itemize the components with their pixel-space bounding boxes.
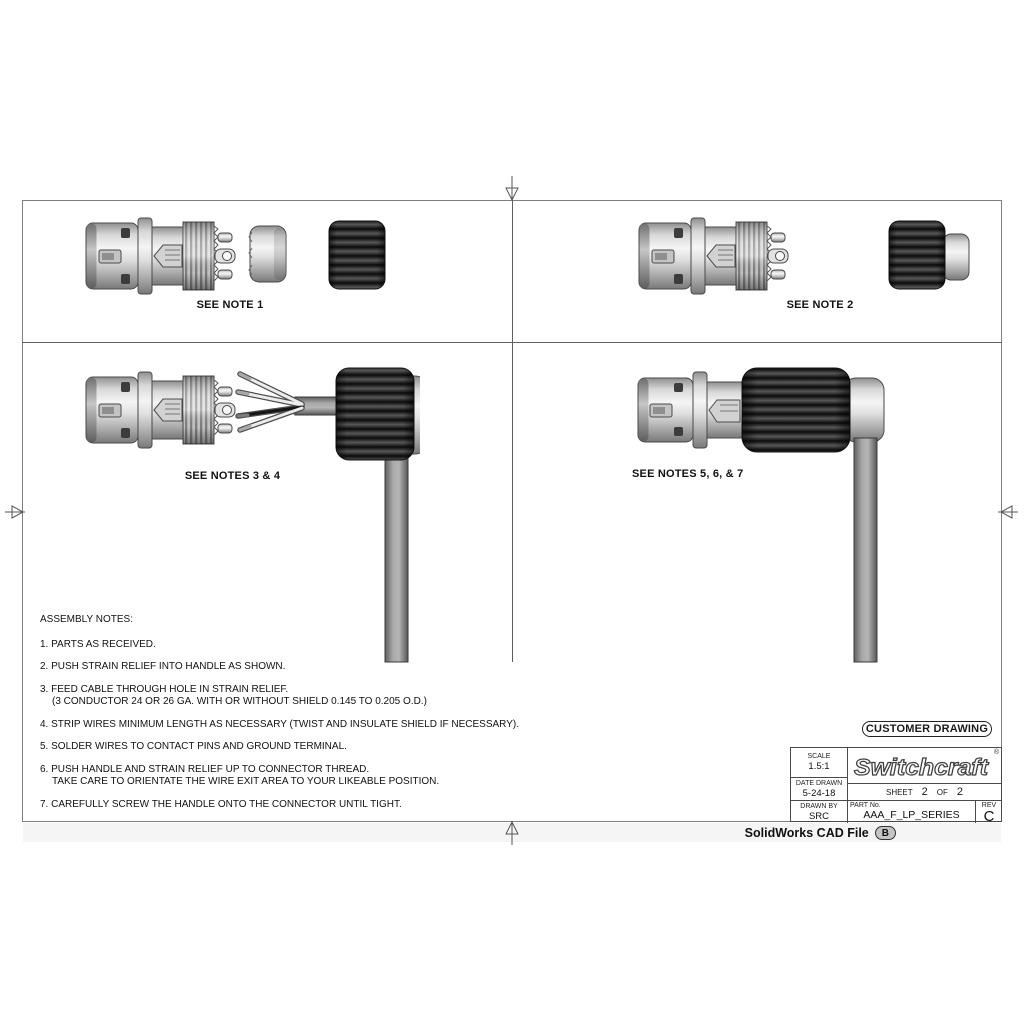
see-note-1-label: SEE NOTE 1 [160, 299, 300, 311]
switchcraft-logo: Switchcraft [851, 749, 999, 783]
brand-logo-cell: Switchcraft ® [848, 748, 1001, 784]
handle-art [742, 368, 850, 452]
assembly-note-2: 2. PUSH STRAIN RELIEF INTO HANDLE AS SHO… [40, 661, 510, 673]
xlr-shell-art [638, 372, 743, 448]
revision-cell: REV C [976, 801, 1002, 823]
customer-drawing-badge: CUSTOMER DRAWING [862, 721, 992, 737]
handle-art [329, 221, 385, 289]
assembly-note-6-continued: TAKE CARE TO ORIENTATE THE WIRE EXIT ARE… [52, 776, 510, 788]
sheet-number: 2 [922, 786, 928, 798]
assembly-note-4: 4. STRIP WIRES MINIMUM LENGTH AS NECESSA… [40, 719, 510, 731]
handle-art [889, 221, 945, 289]
registered-trademark-icon: ® [994, 749, 999, 756]
drawn-by-cell: DRAWN BY SRC [791, 801, 848, 823]
center-mark-right-icon [993, 502, 1019, 522]
sheet-label: SHEET [886, 788, 913, 797]
exploded-parts-drawing [80, 212, 400, 304]
drawn-by-value: SRC [809, 811, 829, 822]
scale-value: 1.5:1 [808, 761, 829, 772]
date-drawn-cell: DATE DRAWN 5-24-18 [791, 778, 848, 801]
assembly-note-7: 7. CAREFULLY SCREW THE HANDLE ONTO THE C… [40, 799, 510, 811]
xlr-connector-art [86, 218, 235, 294]
date-drawn-value: 5-24-18 [803, 788, 836, 799]
assembly-note-1: 1. PARTS AS RECEIVED. [40, 639, 510, 651]
handle-with-relief-drawing [633, 212, 978, 304]
see-notes-3-4-label: SEE NOTES 3 & 4 [145, 470, 320, 482]
assembly-note-3: 3. FEED CABLE THROUGH HOLE IN STRAIN REL… [40, 684, 510, 696]
center-mark-top-icon [502, 176, 522, 202]
see-note-2-label: SEE NOTE 2 [750, 299, 890, 311]
of-label: OF [937, 788, 948, 797]
handle-art [336, 368, 414, 460]
scale-cell: SCALE 1.5:1 [791, 748, 848, 778]
assembly-notes-title: ASSEMBLY NOTES: [40, 614, 510, 626]
part-number-cell: PART No. AAA_F_LP_SERIES [848, 801, 976, 823]
center-mark-left-icon [5, 502, 31, 522]
assembly-notes: ASSEMBLY NOTES: 1. PARTS AS RECEIVED. 2.… [40, 614, 510, 821]
assembly-note-6: 6. PUSH HANDLE AND STRAIN RELIEF UP TO C… [40, 764, 510, 776]
footer: SolidWorks CAD File B [700, 825, 896, 841]
assembled-connector-drawing [630, 360, 890, 666]
view-divider-vertical [512, 200, 513, 662]
revision-value: C [984, 810, 995, 824]
xlr-connector-art [639, 218, 788, 294]
assembly-note-5: 5. SOLDER WIRES TO CONTACT PINS AND GROU… [40, 741, 510, 753]
scale-label: SCALE [808, 753, 831, 761]
see-notes-5-6-7-label: SEE NOTES 5, 6, & 7 [632, 468, 812, 480]
title-block: SCALE 1.5:1 DATE DRAWN 5-24-18 DRAWN BY … [790, 747, 1002, 822]
part-number-value: AAA_F_LP_SERIES [863, 810, 959, 821]
inserted-relief-art [943, 234, 969, 280]
stripped-wires-art [238, 374, 302, 430]
center-mark-bottom-icon [502, 820, 522, 846]
brand-name-text: Switchcraft [854, 754, 989, 780]
drawn-by-label: DRAWN BY [800, 803, 837, 811]
strain-relief-art [249, 226, 286, 282]
cable-vertical-art [854, 438, 877, 662]
date-drawn-label: DATE DRAWN [796, 780, 842, 788]
sheet-cell: SHEET 2 OF 2 [848, 784, 1001, 801]
sheet-total: 2 [957, 786, 963, 798]
assembly-note-3-continued: (3 CONDUCTOR 24 OR 26 GA. WITH OR WITHOU… [52, 696, 510, 708]
cad-file-label: SolidWorks CAD File [745, 826, 869, 840]
cad-revision-badge: B [875, 826, 896, 840]
xlr-connector-art [86, 372, 235, 448]
